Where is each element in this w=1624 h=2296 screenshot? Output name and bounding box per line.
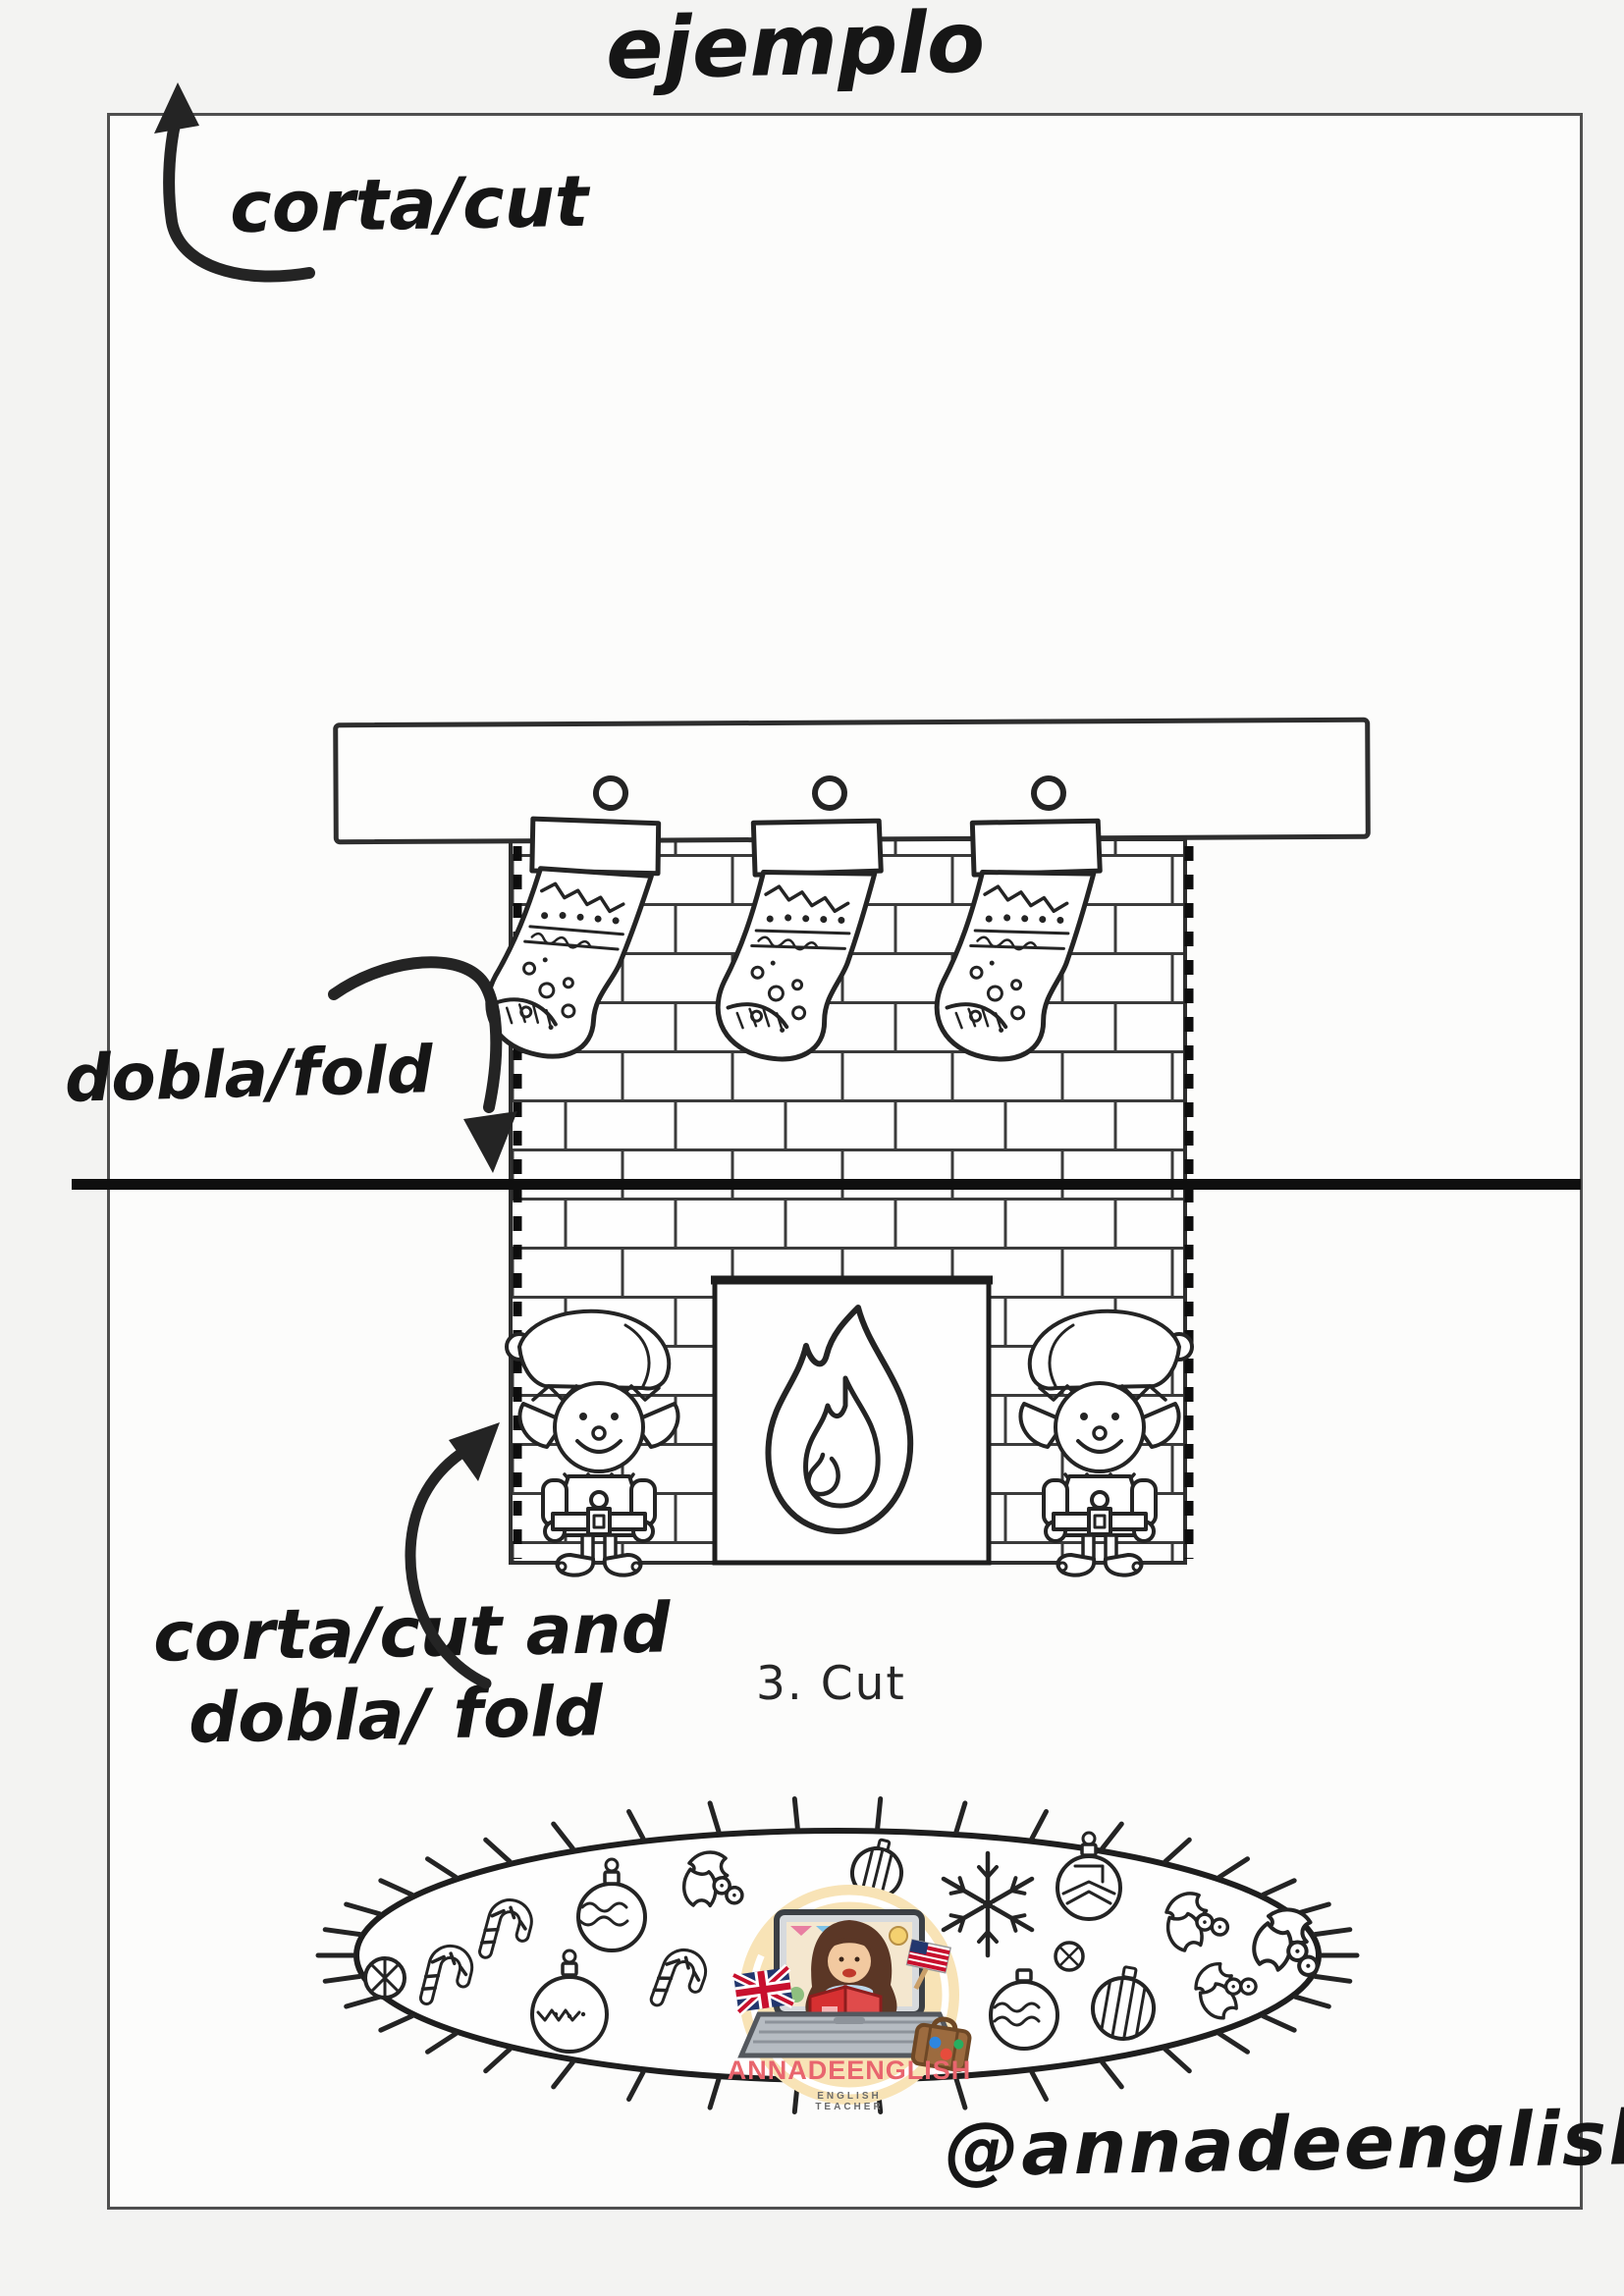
ball-icon <box>365 1958 405 1998</box>
fold-line <box>72 1179 1581 1190</box>
brand-name: ANNADEENGLISH <box>727 2056 972 2086</box>
ball-icon <box>1056 1943 1083 1970</box>
brand-tagline: ENGLISH TEACHER <box>781 2091 918 2112</box>
worksheet-page: ejemplo corta/cut <box>0 0 1624 2296</box>
fold-arrow-icon <box>324 940 520 1181</box>
uk-flag-icon <box>733 1967 793 2011</box>
social-handle: @annadeenglish <box>944 2101 1624 2188</box>
cut-arrow-icon <box>133 77 319 288</box>
cut-and-fold-arrow-icon <box>378 1409 525 1693</box>
step-label: 3. Cut <box>756 1657 906 1711</box>
page-title: ejemplo <box>588 0 1001 91</box>
